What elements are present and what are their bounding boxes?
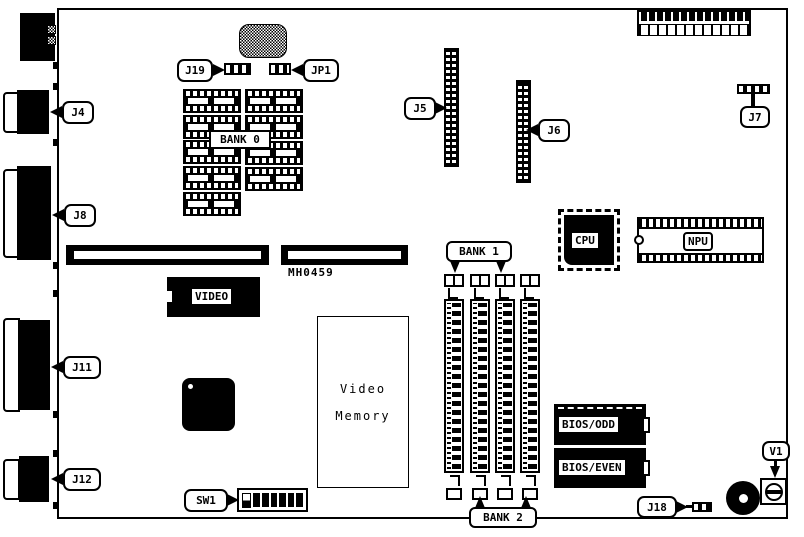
speaker-hole	[739, 494, 748, 503]
keyboard-connector-pin	[47, 36, 56, 45]
power-connector-sockets	[639, 24, 749, 35]
qfp-chip	[182, 378, 235, 431]
callout-sw1: SW1	[184, 489, 228, 512]
dram-chip	[245, 89, 303, 113]
callout-j12: J12	[63, 468, 101, 491]
jumper-j19	[224, 63, 251, 75]
video-chip: VIDEO	[167, 277, 260, 317]
simm-slot-3-tab	[497, 488, 513, 500]
callout-j19: J19	[177, 59, 213, 82]
simm-slot-3	[495, 299, 515, 473]
label-bank2: BANK 2	[469, 507, 537, 528]
simm-slot-1-tab	[446, 488, 462, 500]
simm-slot-1-latch	[448, 288, 458, 299]
simm-contact-column	[478, 303, 487, 469]
power-connector-pins	[639, 12, 749, 21]
dip-switch-pole	[279, 493, 286, 507]
simm-slot-3-latch	[501, 475, 511, 486]
simm-slot-4-latch	[526, 475, 536, 486]
dram-chip	[183, 166, 241, 190]
simm-contact-column	[473, 303, 477, 469]
callout-pointer	[51, 473, 63, 485]
bios-odd-chip: BIOS/ODD	[554, 404, 646, 445]
edge-notch	[53, 139, 59, 146]
simm-slot-3-latch	[499, 288, 509, 299]
edge-notch	[53, 290, 59, 297]
edge-notch	[53, 450, 59, 457]
port-j12-shroud	[3, 459, 20, 500]
thermal-pad	[239, 24, 287, 58]
callout-j4: J4	[62, 101, 94, 124]
callout-j11: J11	[63, 356, 101, 379]
keyboard-connector-pin	[47, 25, 56, 34]
callout-j5: J5	[404, 97, 436, 120]
expansion-slot-channel	[74, 251, 261, 259]
cpu-label: CPU	[570, 231, 600, 250]
callout-pointer	[291, 64, 303, 76]
dip-switch-pole	[271, 493, 278, 507]
label-bank0: BANK 0	[209, 130, 271, 149]
simm-contact-column	[447, 303, 451, 469]
port-j8	[17, 166, 51, 260]
dip-switch-pole	[296, 493, 303, 507]
video-chip-notch	[167, 291, 172, 302]
dram-chip	[245, 167, 303, 191]
callout-pointer	[213, 64, 225, 76]
dip-switch-pole	[253, 493, 260, 507]
callout-j18: J18	[637, 496, 677, 518]
jumper-j18	[692, 502, 712, 512]
simm-contact-column	[528, 303, 537, 469]
bios-even-tab	[642, 460, 650, 476]
bios-odd-label: BIOS/ODD	[559, 417, 618, 432]
callout-pointer	[496, 261, 506, 273]
cpu-socket: CPU	[558, 209, 620, 271]
callout-pointer	[227, 494, 239, 506]
qfp-pin1-dot	[188, 384, 193, 389]
power-connector	[637, 10, 751, 36]
callout-jp1: JP1	[303, 59, 339, 82]
simm-contact-column	[503, 303, 512, 469]
trimmer-screw	[765, 483, 783, 501]
speaker	[726, 481, 760, 515]
expansion-slot	[66, 245, 269, 265]
expansion-slot-channel	[288, 251, 401, 259]
label-bank1: BANK 1	[446, 241, 512, 262]
callout-j6: J6	[538, 119, 570, 142]
simm-slot-2	[470, 299, 490, 473]
bios-odd-tab	[642, 417, 650, 433]
jumper-jp1	[269, 63, 291, 75]
callout-pointer	[751, 94, 755, 106]
callout-pointer	[526, 124, 538, 136]
callout-pointer	[435, 102, 447, 114]
video-memory-region: Video Memory	[317, 316, 409, 488]
callout-pointer	[450, 261, 460, 273]
simm-slot-4-latch	[524, 288, 534, 299]
npu-notch	[634, 235, 644, 245]
simm-contact-column	[452, 303, 461, 469]
board-id: MH0459	[288, 266, 334, 279]
simm-slot-1-cap	[444, 274, 464, 287]
simm-slot-4	[520, 299, 540, 473]
jumper-j7	[737, 84, 770, 94]
trimmer-v1	[760, 478, 787, 505]
expansion-slot	[281, 245, 408, 265]
header-pin-column	[452, 51, 456, 163]
callout-pointer	[770, 466, 780, 478]
simm-contact-column	[523, 303, 527, 469]
edge-notch	[53, 83, 59, 90]
npu-pin-row	[639, 253, 762, 261]
motherboard-diagram: J4 J8 J11 J12 J19 JP1 BANK 0 J5 J6	[0, 0, 804, 537]
port-j4	[17, 90, 49, 134]
header-pin-column	[518, 83, 522, 179]
npu-socket: NPU	[637, 217, 764, 263]
dram-chip	[183, 192, 241, 216]
simm-slot-2-cap	[470, 274, 490, 287]
callout-v1: V1	[762, 441, 790, 461]
callout-pointer	[51, 361, 63, 373]
simm-slot-4-cap	[520, 274, 540, 287]
callout-j7: J7	[740, 106, 770, 128]
npu-pin-row	[639, 219, 762, 229]
edge-notch	[53, 502, 59, 509]
bios-even-chip: BIOS/EVEN	[554, 448, 646, 488]
simm-slot-2-latch	[476, 475, 486, 486]
video-memory-line1: Video	[340, 382, 386, 396]
simm-slot-1	[444, 299, 464, 473]
simm-slot-3-cap	[495, 274, 515, 287]
port-j11	[19, 320, 50, 410]
dip-switch-pole	[288, 493, 295, 507]
simm-slot-1-latch	[450, 475, 460, 486]
callout-pointer	[686, 505, 692, 508]
callout-j8: J8	[64, 204, 96, 227]
edge-notch	[53, 62, 59, 69]
video-memory-line2: Memory	[335, 409, 390, 423]
npu-label: NPU	[683, 232, 713, 251]
video-chip-label: VIDEO	[190, 287, 233, 306]
bios-even-label: BIOS/EVEN	[559, 460, 625, 475]
simm-contact-column	[498, 303, 502, 469]
edge-notch	[53, 411, 59, 418]
port-j12	[19, 456, 49, 502]
bios-odd-keyline	[558, 407, 642, 409]
callout-pointer	[52, 209, 64, 221]
callout-pointer	[50, 106, 62, 118]
dram-chip	[183, 89, 241, 113]
port-j11-shroud	[3, 318, 20, 412]
dip-switch-sw1	[237, 488, 308, 512]
simm-slot-2-latch	[474, 288, 484, 299]
dip-switch-pole	[262, 493, 269, 507]
edge-notch	[53, 262, 59, 269]
dip-switch-indicator	[242, 493, 251, 508]
